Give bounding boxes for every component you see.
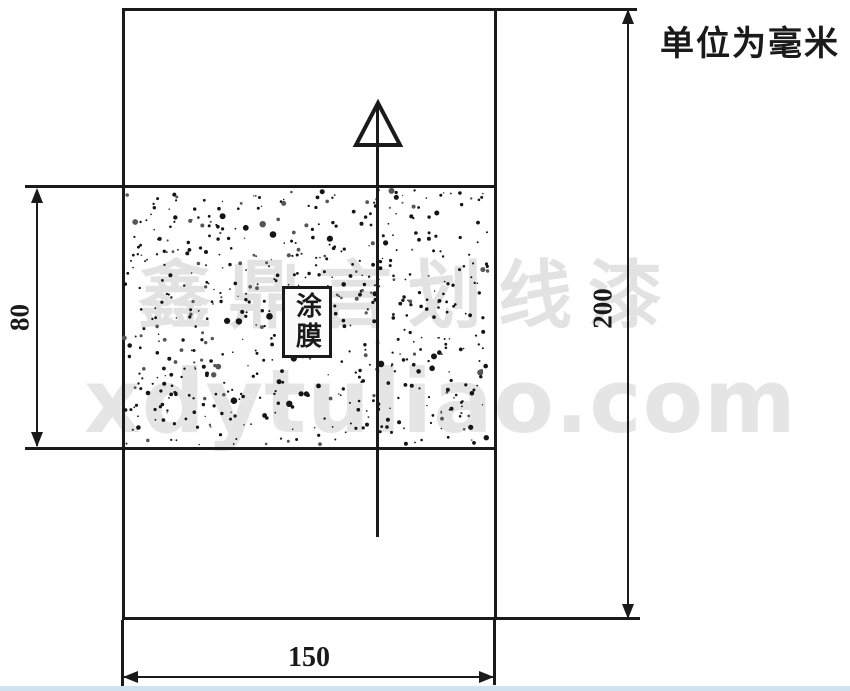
drawing-canvas: 鑫鼎言划线漆 xdytuliao.com 涂膜 80 200 150 单位为毫米	[0, 0, 850, 691]
coating-film-label: 涂膜	[289, 292, 326, 352]
dim-arrow-up-icon	[622, 9, 634, 24]
dimension-value-200: 200	[590, 269, 617, 349]
dim-arrow-right-icon	[479, 671, 494, 683]
extension-line-top	[494, 8, 637, 11]
dimension-value-150: 150	[209, 644, 409, 672]
dimension-line-150	[124, 676, 495, 678]
dim-arrow-up-icon	[31, 188, 43, 203]
application-direction-arrow-icon	[350, 99, 406, 149]
dimension-line-200	[627, 10, 629, 618]
dim-arrow-left-icon	[123, 671, 138, 683]
dimension-value-80: 80	[7, 288, 34, 348]
extension-line-bottom	[494, 617, 640, 620]
unit-note: 单位为毫米	[660, 16, 840, 65]
scan-edge-strip	[0, 686, 850, 691]
dim-arrow-down-icon	[622, 604, 634, 619]
coating-film-label-box: 涂膜	[282, 286, 332, 358]
dimension-line-80	[36, 190, 38, 446]
application-direction-arrow-shaft	[376, 106, 379, 537]
dim-arrow-down-icon	[31, 432, 43, 447]
extension-line-band-bottom	[25, 447, 122, 450]
